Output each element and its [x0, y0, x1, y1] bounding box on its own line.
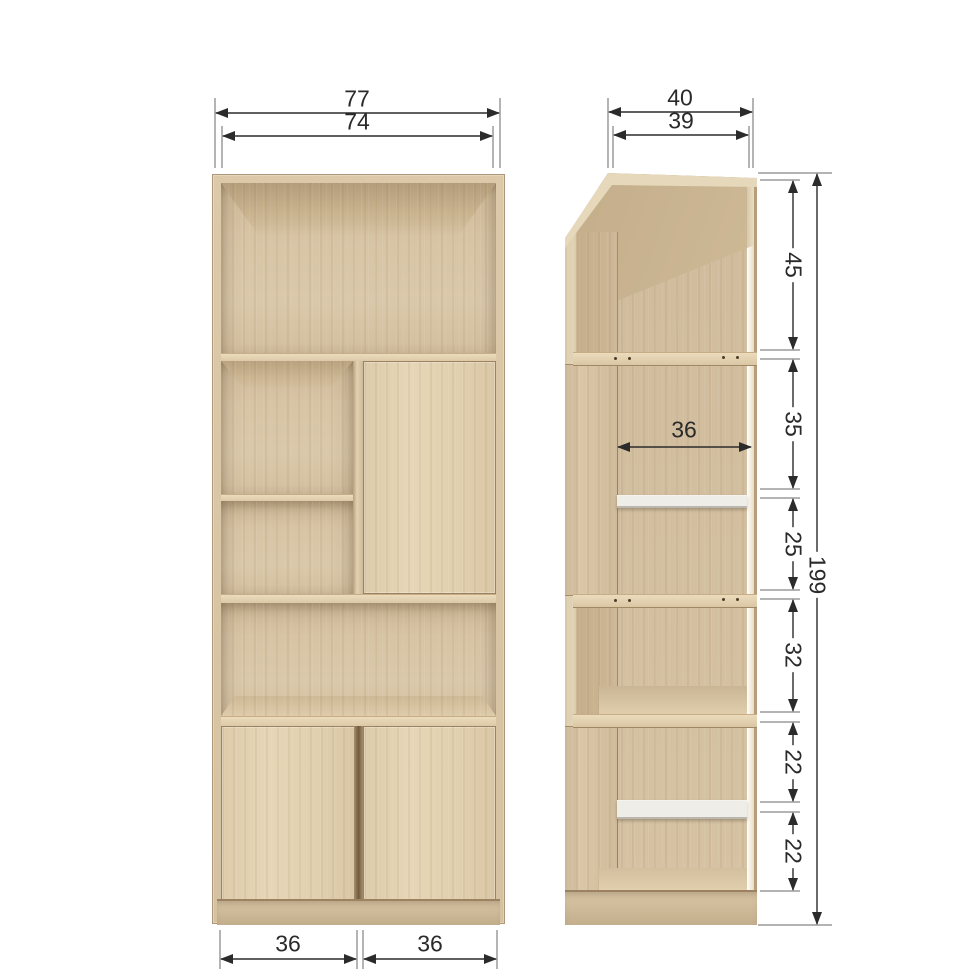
screw [628, 357, 631, 360]
dim-label-height-total: 199 [805, 552, 830, 598]
dim-label-door-width-left: 36 [275, 933, 301, 956]
front-view [212, 174, 505, 924]
dim-label-segment-2: 25 [781, 527, 806, 561]
dim-label-width-inner: 74 [344, 111, 370, 134]
dim-label-segment-3: 32 [781, 638, 806, 672]
dim-label-width-total: 77 [344, 88, 370, 111]
side-shelf-1 [573, 352, 757, 366]
dim-label-segment-1: 35 [781, 407, 806, 441]
dim-label-door-width-right: 36 [417, 933, 443, 956]
front-plinth [217, 899, 500, 925]
side-white-shelf-1 [617, 495, 747, 508]
front-middle-divider [353, 361, 363, 594]
front-open-compartment [221, 603, 496, 716]
dim-label-interior-width: 36 [671, 419, 697, 442]
side-plinth [565, 890, 757, 927]
screw [628, 599, 631, 602]
cabinet-dimension-drawing: 77 74 40 39 36 45 35 25 32 22 22 199 36 … [0, 0, 970, 971]
screw [614, 599, 617, 602]
dim-label-depth-inner: 39 [668, 110, 694, 133]
side-right-outer-edge [754, 172, 757, 925]
side-shelf-3 [573, 714, 757, 728]
screw [722, 598, 725, 601]
front-bottom-left-door [221, 726, 356, 901]
front-middle-left-lower-compartment [221, 501, 353, 594]
dim-label-segment-5: 22 [781, 834, 806, 868]
side-bottom-floor [599, 868, 747, 890]
dim-label-segment-0: 45 [781, 248, 806, 282]
side-shelf-2 [573, 594, 757, 608]
side-view [565, 172, 757, 925]
front-middle-left-upper-compartment [221, 361, 353, 494]
front-top-compartment [221, 183, 496, 353]
dim-label-depth-total: 40 [667, 87, 693, 110]
screw [736, 598, 739, 601]
screw [736, 356, 739, 359]
side-shelf-top-surface [599, 686, 747, 714]
side-middle-door-edge [565, 364, 618, 596]
screw [614, 357, 617, 360]
screw [722, 356, 725, 359]
side-white-shelf-2 [617, 800, 747, 819]
side-right-inner-wall [747, 172, 754, 925]
front-bottom-right-door [363, 726, 496, 901]
front-bottom-door-gap [354, 726, 363, 899]
front-middle-door [363, 361, 496, 594]
dim-label-segment-4: 22 [781, 745, 806, 779]
bottom-width-extension-lines [220, 930, 497, 969]
